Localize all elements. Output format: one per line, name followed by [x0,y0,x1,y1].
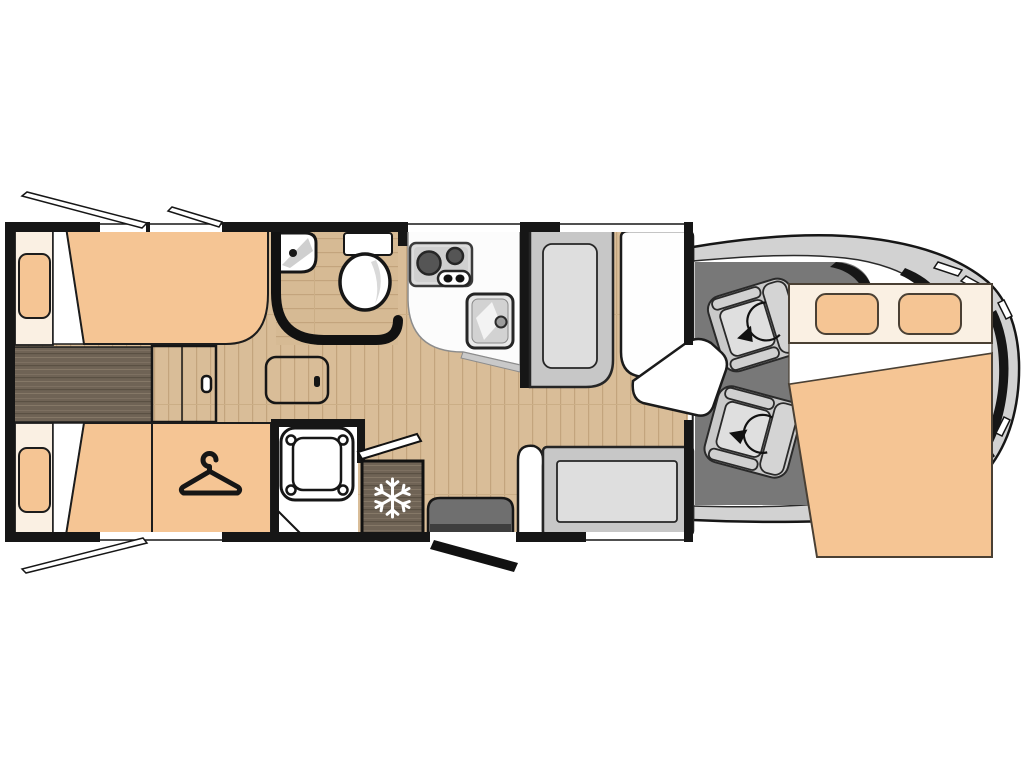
entry-step-base [430,524,511,533]
bed-pillow [19,448,50,512]
hob-knob [456,275,465,283]
burner-large [418,252,441,275]
wall [520,222,560,232]
wall-left [5,222,15,542]
tray-fitting [339,486,348,495]
tray-fitting [339,436,348,445]
between-bed-walkway [10,347,152,422]
habitation-area [10,222,727,538]
wall [516,532,586,542]
wall-cab-partition-top [684,222,693,345]
single-bed-bottom [15,423,152,535]
bench-armrest [518,446,543,535]
floor-plan [0,0,1024,768]
tray-fitting [287,436,296,445]
bed-pillow-left [816,294,878,334]
hob-controls [438,271,470,286]
window-bottom-bedroom [100,532,222,542]
tray-fitting [287,486,296,495]
wall-cab-partition-bottom [684,420,693,542]
burner-small [447,248,463,264]
bench-rear-cushion [557,461,677,522]
sink-tap [496,317,507,328]
wall [222,532,430,542]
wall [5,222,100,232]
shower-tray-inner [293,438,341,490]
shower-top-wall [271,419,359,427]
bench-front-cushion [543,244,597,368]
bed-pillow [19,254,50,318]
window-top-kitchen [408,222,520,232]
window-top-bedroom [100,222,222,232]
overcab-drop-down-bed [789,284,992,557]
entry-door-opening [430,532,516,542]
step-handle [202,376,211,392]
wall [5,532,100,542]
floor-hatch-handle [314,376,320,387]
window-bottom-dinette [586,532,688,542]
window-top-dinette [560,222,686,232]
bed-pillow-right [899,294,961,334]
single-bed-top [15,227,268,345]
entry-door-open [430,540,518,572]
snowflake-stroke [381,485,382,492]
snowflake-stroke [403,504,404,511]
hob-knob [444,275,453,283]
kitchen-dinette-wall [520,222,530,388]
basin-tap [289,249,297,257]
kitchen-sink [467,294,513,348]
hob-two-burners [410,243,472,286]
shower [271,419,365,538]
bed-duvet [66,227,268,344]
shower-left-wall [271,419,279,538]
floor-plan-canvas [0,0,1024,768]
bed-duvet [789,353,992,557]
window-opener-bottom [22,538,147,573]
toilet-cistern [344,233,392,255]
fridge-freezer [362,461,423,535]
toilet-bowl [340,254,390,310]
wardrobe [152,423,271,535]
wall [222,222,408,232]
